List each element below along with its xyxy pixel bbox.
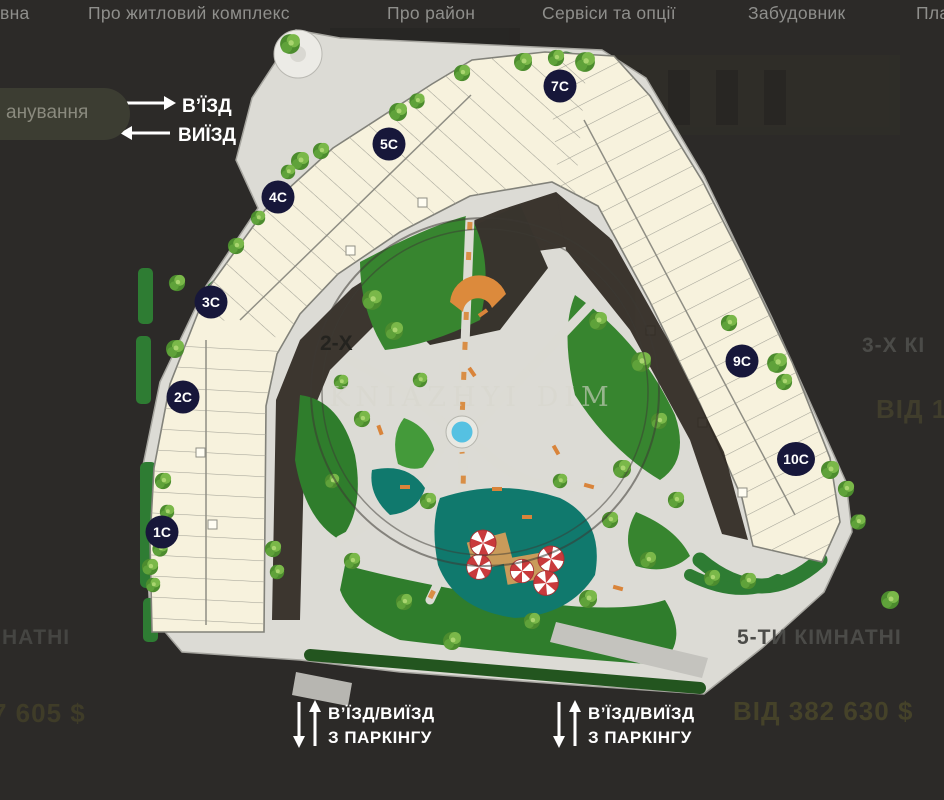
- entrance-out-label: ВИЇЗД: [178, 125, 237, 146]
- down-up-arrows-icon: [553, 700, 581, 748]
- apartment-price-3rooms: ВІД 1: [876, 394, 944, 425]
- section-badge-7c[interactable]: 7С: [544, 70, 577, 103]
- nav-item-services[interactable]: Сервіси та опції: [542, 3, 676, 24]
- svg-text:3С: 3С: [202, 294, 220, 310]
- svg-text:2С: 2С: [174, 389, 192, 405]
- svg-text:1С: 1С: [153, 524, 171, 540]
- parking-text-line1: В’ЇЗД/ВИЇЗД: [588, 704, 695, 723]
- page: KNIAZHYI DIM 2-Х 1С 2С 3С 4С 5С 7С 9С 10…: [0, 0, 944, 800]
- section-badge-4c[interactable]: 4С: [262, 181, 295, 214]
- planning-button[interactable]: анування: [0, 88, 130, 140]
- svg-text:5С: 5С: [380, 136, 398, 152]
- svg-text:7С: 7С: [551, 78, 569, 94]
- parking-label-left: В’ЇЗД/ВИЇЗД З ПАРКІНГУ: [293, 700, 435, 748]
- parking-text-line2: З ПАРКІНГУ: [588, 728, 692, 747]
- svg-text:4С: 4С: [269, 189, 287, 205]
- down-up-arrows-icon: [293, 700, 321, 748]
- apartment-price-left-fragment: 7 605 $: [0, 698, 86, 729]
- nav-item-district[interactable]: Про район: [387, 3, 475, 24]
- parking-label-right: В’ЇЗД/ВИЇЗД З ПАРКІНГУ: [553, 700, 695, 748]
- arrow-right-icon: [126, 96, 176, 110]
- section-badge-10c[interactable]: 10С: [777, 442, 815, 476]
- svg-text:9С: 9С: [733, 353, 751, 369]
- parking-text-line2: З ПАРКІНГУ: [328, 728, 432, 747]
- apartment-title-left-fragment: НАТНІ: [2, 626, 70, 650]
- entrance-in-label: В’ЇЗД: [182, 96, 232, 117]
- section-badge-1c[interactable]: 1С: [146, 516, 179, 549]
- nav-item-about[interactable]: Про житловий комплекс: [88, 3, 290, 24]
- apartment-price-5rooms: ВІД 382 630 $: [733, 696, 913, 727]
- fountain: [446, 416, 478, 448]
- svg-text:10С: 10С: [783, 451, 809, 467]
- nav-item-plans[interactable]: План: [916, 3, 944, 24]
- nav-item-home[interactable]: вна: [0, 3, 30, 24]
- watermark-text: KNIAZHYI DIM: [329, 382, 614, 413]
- entrance-labels: В’ЇЗД ВИЇЗД: [120, 96, 237, 146]
- arrow-left-icon: [120, 126, 170, 140]
- section-badge-2c[interactable]: 2С: [167, 381, 200, 414]
- planning-button-label: анування: [6, 102, 88, 124]
- section-badge-3c[interactable]: 3С: [195, 286, 228, 319]
- section-badge-5c[interactable]: 5С: [373, 128, 406, 161]
- nav-item-developer[interactable]: Забудовник: [748, 3, 845, 24]
- section-badge-9c[interactable]: 9С: [726, 345, 759, 378]
- apartment-title-3rooms: 3-Х КІ: [862, 334, 925, 358]
- site-plan-map[interactable]: KNIAZHYI DIM 2-Х 1С 2С 3С 4С 5С 7С 9С 10…: [0, 0, 944, 800]
- parking-text-line1: В’ЇЗД/ВИЇЗД: [328, 704, 435, 723]
- apartment-label-fragment: 2-Х: [320, 332, 353, 355]
- apartment-title-5rooms: 5-ТИ КІМНАТНІ: [737, 626, 902, 650]
